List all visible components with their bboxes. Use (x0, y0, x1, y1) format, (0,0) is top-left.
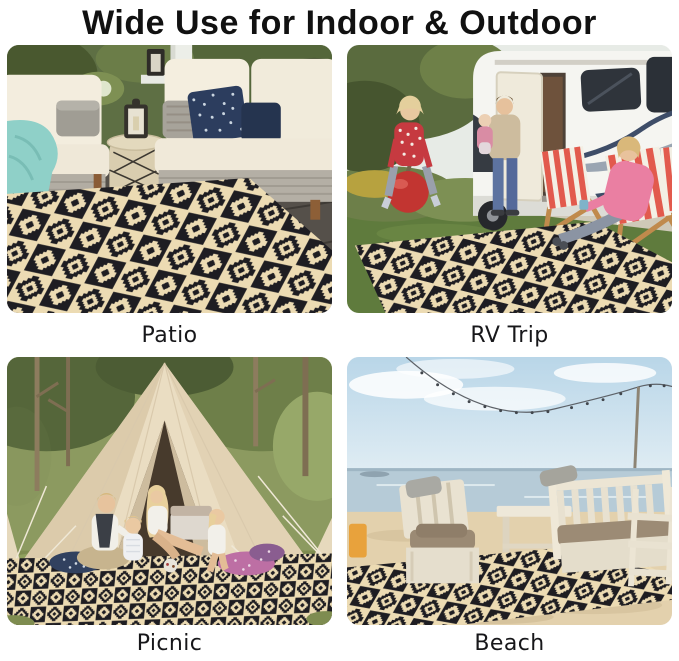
beach-photo (347, 357, 672, 625)
patio-photo (7, 45, 332, 313)
caption-beach: Beach (347, 625, 672, 661)
scene-grid: Patio (0, 45, 679, 661)
scene-rv-trip: RV Trip (347, 45, 672, 357)
rv-trip-scene-illustration (347, 45, 672, 313)
beach-planter (349, 524, 367, 558)
navy-dot-pillow (187, 85, 249, 144)
caption-picnic: Picnic (7, 625, 332, 661)
picnic-scene-illustration (7, 357, 332, 625)
picnic-photo (7, 357, 332, 625)
banner-title: Wide Use for Indoor & Outdoor (0, 0, 679, 45)
beach-scene-illustration (347, 357, 672, 625)
caption-patio: Patio (7, 313, 332, 357)
rv-trip-photo (347, 45, 672, 313)
scene-beach: Beach (347, 357, 672, 661)
patio-scene-illustration (7, 45, 332, 313)
scene-picnic: Picnic (7, 357, 332, 661)
scene-patio: Patio (7, 45, 332, 357)
caption-rv-trip: RV Trip (347, 313, 672, 357)
product-banner: Wide Use for Indoor & Outdoor (0, 0, 679, 661)
